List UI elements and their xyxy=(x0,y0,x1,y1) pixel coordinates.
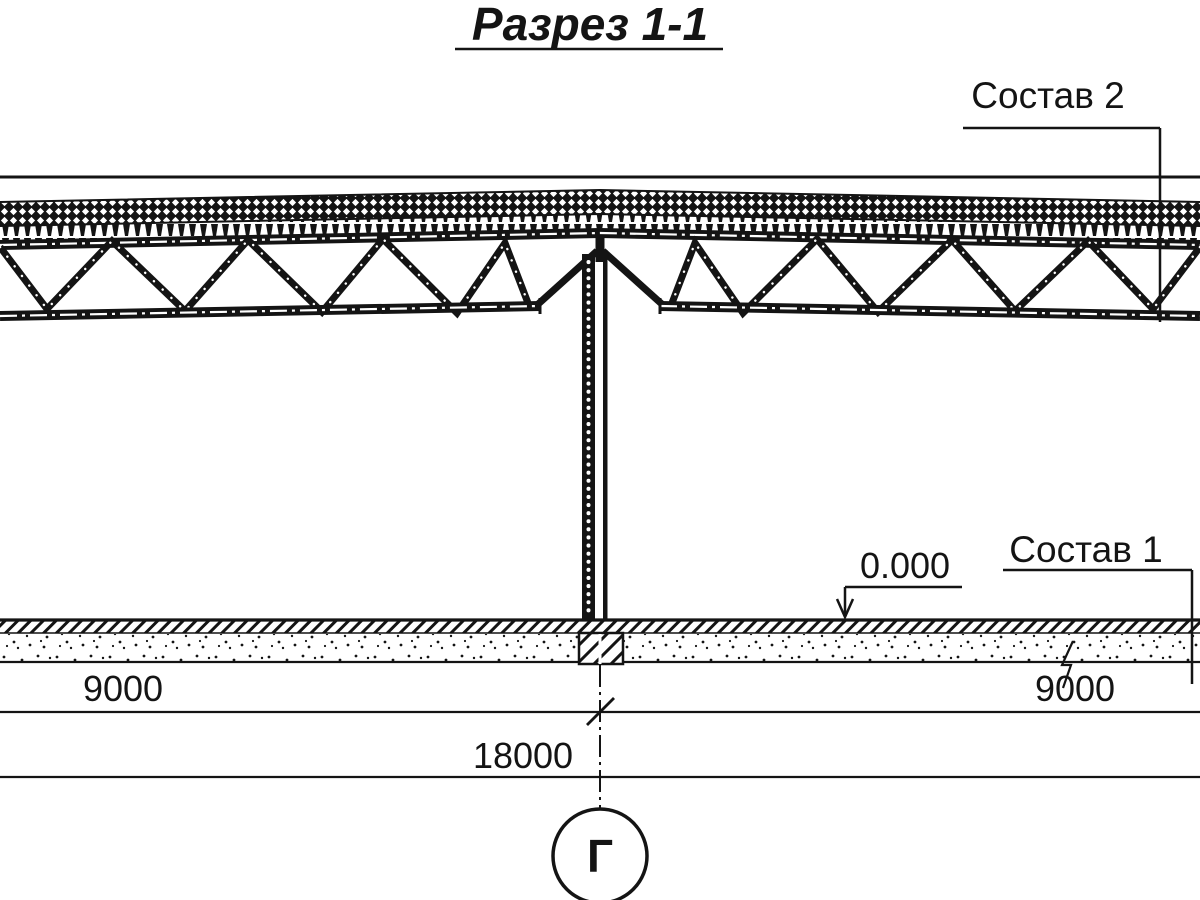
truss-web-left xyxy=(0,239,528,313)
truss-end-diagonal-right xyxy=(603,251,664,306)
dim-total-span: 18000 xyxy=(473,735,573,776)
elevation-value: 0.000 xyxy=(860,545,950,586)
truss-web-right xyxy=(672,239,1200,313)
section-drawing: Разрез 1-1 xyxy=(0,0,1200,900)
floor-composition-callout: Состав 1 xyxy=(1003,529,1192,688)
roof-truss xyxy=(0,233,1200,316)
dim-left-span: 9000 xyxy=(83,668,163,709)
column-flange-line xyxy=(603,250,608,620)
elevation-mark: 0.000 xyxy=(837,545,962,617)
floor-screed-band xyxy=(0,620,1200,633)
axis-label: Г xyxy=(587,830,613,882)
center-column xyxy=(582,250,608,620)
drawing-title: Разрез 1-1 xyxy=(472,0,708,50)
axis-marker: Г xyxy=(553,665,647,900)
floor-composition-label: Состав 1 xyxy=(1009,529,1162,570)
roof-composition-label: Состав 2 xyxy=(971,75,1124,116)
floor-slab xyxy=(0,620,1200,664)
dim-right-span: 9000 xyxy=(1035,668,1115,709)
